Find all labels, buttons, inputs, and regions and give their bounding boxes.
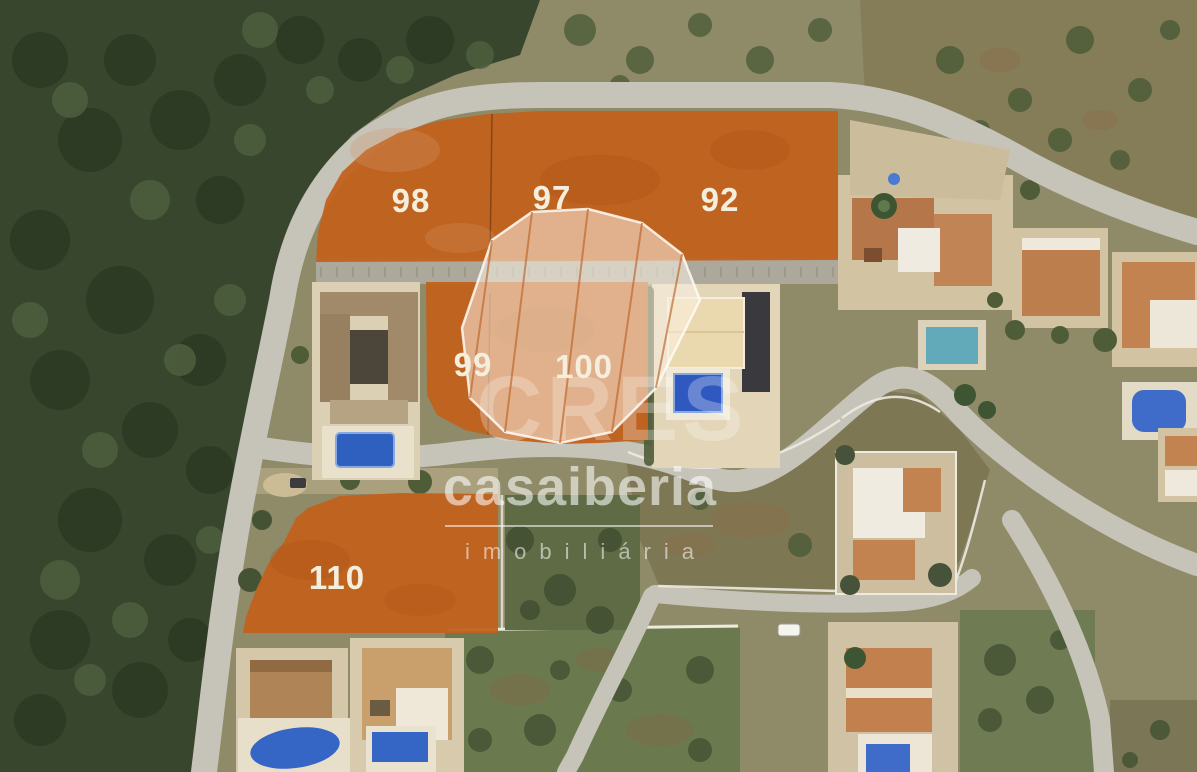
plot-label-100: 100 (555, 348, 613, 385)
parked-car (290, 478, 306, 488)
palm-tree (954, 384, 976, 406)
swimming-pool (336, 433, 394, 467)
palm-tree (978, 401, 996, 419)
villa-mid-right (835, 445, 956, 595)
swimming-pool (926, 327, 978, 364)
villa-right-edge (1158, 428, 1197, 502)
swimming-pool (866, 744, 910, 772)
plot-label-99: 99 (454, 346, 493, 383)
watermark-brand: casaiberia (443, 457, 717, 517)
satellite-map: CRES 98 97 92 99 100 110 casaiberia imob… (0, 0, 1197, 772)
villa-bottom-left-2 (350, 638, 464, 772)
tree-over-road (291, 346, 309, 364)
villa-bottom-left-1 (236, 648, 350, 772)
plot-label-98: 98 (392, 182, 431, 219)
watermark-tagline: imobiliária (465, 539, 707, 564)
plot-label-97: 97 (533, 179, 572, 216)
tree-over-road (252, 510, 272, 530)
parked-car (778, 624, 800, 636)
plot-label-92: 92 (701, 181, 740, 218)
round-pool (888, 173, 900, 185)
watermark-agency: casaiberia imobiliária (443, 457, 717, 564)
palm-tree (844, 647, 866, 669)
swimming-pool (372, 732, 428, 762)
swimming-pool (1132, 390, 1186, 432)
plot-label-110: 110 (309, 559, 365, 596)
